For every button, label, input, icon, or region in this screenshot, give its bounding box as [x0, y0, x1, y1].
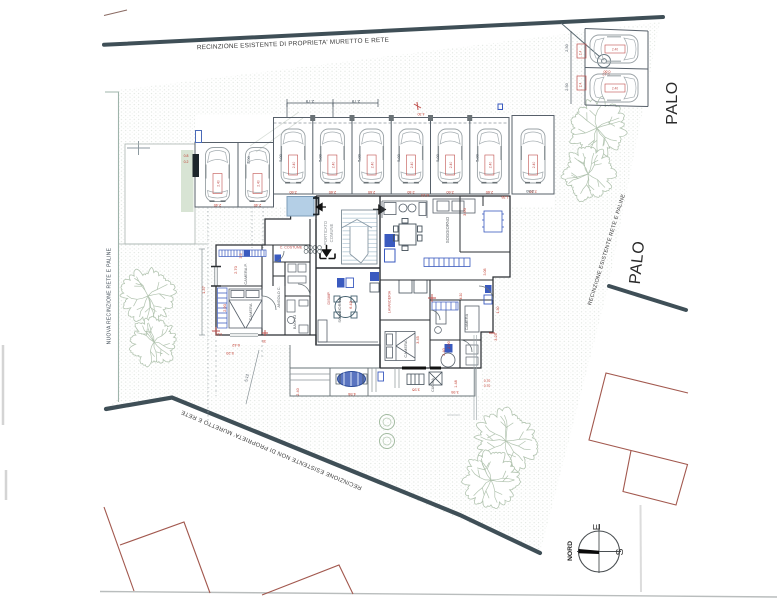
svg-text:2.60: 2.60 [289, 190, 296, 194]
svg-text:5.00: 5.00 [436, 154, 440, 161]
svg-text:CAMERA: CAMERA [248, 303, 253, 320]
svg-text:5.00: 5.00 [279, 154, 283, 161]
svg-text:2.40: 2.40 [214, 203, 221, 207]
svg-text:DISIMP.: DISIMP. [327, 291, 331, 304]
svg-text:3.95: 3.95 [451, 390, 458, 394]
svg-text:0.8: 0.8 [184, 154, 189, 158]
svg-text:0.2: 0.2 [184, 160, 189, 164]
svg-text:3.08: 3.08 [483, 269, 487, 276]
svg-text:CAMERA: CAMERA [465, 313, 469, 330]
svg-text:2.40: 2.40 [254, 203, 261, 207]
svg-text:6.43: 6.43 [348, 300, 353, 309]
svg-text:3.25: 3.25 [494, 333, 498, 340]
svg-text:ANGOLO C.: ANGOLO C. [277, 286, 281, 307]
svg-text:S: S [614, 548, 626, 555]
svg-text:E: E [592, 523, 603, 530]
svg-text:3.95: 3.95 [411, 388, 420, 393]
svg-text:2.4: 2.4 [579, 51, 583, 56]
svg-text:3.90: 3.90 [462, 207, 467, 216]
svg-text:3.5: 3.5 [239, 254, 243, 259]
svg-text:5.00: 5.00 [247, 156, 251, 163]
svg-text:2.79: 2.79 [351, 99, 360, 104]
svg-text:NORD: NORD [567, 541, 574, 561]
svg-text:5.00: 5.00 [318, 154, 322, 161]
svg-text:2.60: 2.60 [486, 190, 493, 194]
svg-text:6.10: 6.10 [421, 193, 428, 197]
svg-text:2.50: 2.50 [565, 83, 569, 90]
svg-text:2.4: 2.4 [579, 83, 583, 88]
svg-text:5.20: 5.20 [225, 351, 234, 356]
svg-text:SOGGIORNO: SOGGIORNO [445, 216, 450, 243]
svg-text:2.40: 2.40 [442, 348, 446, 355]
svg-text:2.80: 2.80 [525, 189, 534, 194]
svg-text:0.60: 0.60 [604, 70, 611, 74]
svg-text:5.00: 5.00 [475, 154, 479, 161]
svg-text:SOGGIORNO: SOGGIORNO [337, 297, 342, 322]
svg-text:LAVANDERIA: LAVANDERIA [388, 290, 392, 313]
svg-text:2.60: 2.60 [446, 190, 453, 194]
svg-text:0.70: 0.70 [484, 379, 491, 383]
svg-text:2.40: 2.40 [296, 388, 300, 395]
svg-text:6.42: 6.42 [231, 343, 240, 348]
svg-text:2.79: 2.79 [305, 99, 314, 104]
svg-text:5.00: 5.00 [397, 154, 401, 161]
svg-text:2.60: 2.60 [329, 190, 336, 194]
svg-text:1.35: 1.35 [502, 195, 509, 199]
svg-text:1.30: 1.30 [496, 307, 500, 314]
svg-text:2.60: 2.60 [407, 190, 414, 194]
svg-text:1.48: 1.48 [454, 380, 458, 387]
svg-text:4.30: 4.30 [459, 293, 463, 300]
svg-text:3.45: 3.45 [416, 336, 420, 343]
svg-text:2.60: 2.60 [368, 190, 375, 194]
svg-text:COMUNE: COMUNE [329, 223, 334, 242]
svg-text:4.56: 4.56 [347, 392, 356, 397]
svg-text:PALO: PALO [664, 81, 681, 125]
svg-text:0.70: 0.70 [484, 384, 491, 388]
svg-text:5.00: 5.00 [358, 154, 362, 161]
svg-text:C. COSTUME: C. COSTUME [280, 246, 303, 250]
svg-text:4.30: 4.30 [418, 112, 425, 116]
svg-text:35: 35 [262, 339, 266, 343]
svg-text:0.40: 0.40 [216, 332, 222, 336]
svg-text:2.50: 2.50 [565, 44, 569, 51]
svg-text:BAGNO: BAGNO [292, 315, 297, 329]
svg-text:2.90: 2.90 [447, 341, 451, 348]
svg-text:2.90: 2.90 [222, 303, 227, 312]
svg-text:CAMERA P.: CAMERA P. [243, 263, 248, 284]
svg-text:CAMERA: CAMERA [403, 340, 408, 357]
svg-text:NUOVA RECINZIONE RETE E PALINE: NUOVA RECINZIONE RETE E PALINE [107, 247, 113, 344]
svg-text:2.70: 2.70 [233, 265, 238, 274]
svg-text:PORTICATO: PORTICATO [323, 220, 328, 245]
